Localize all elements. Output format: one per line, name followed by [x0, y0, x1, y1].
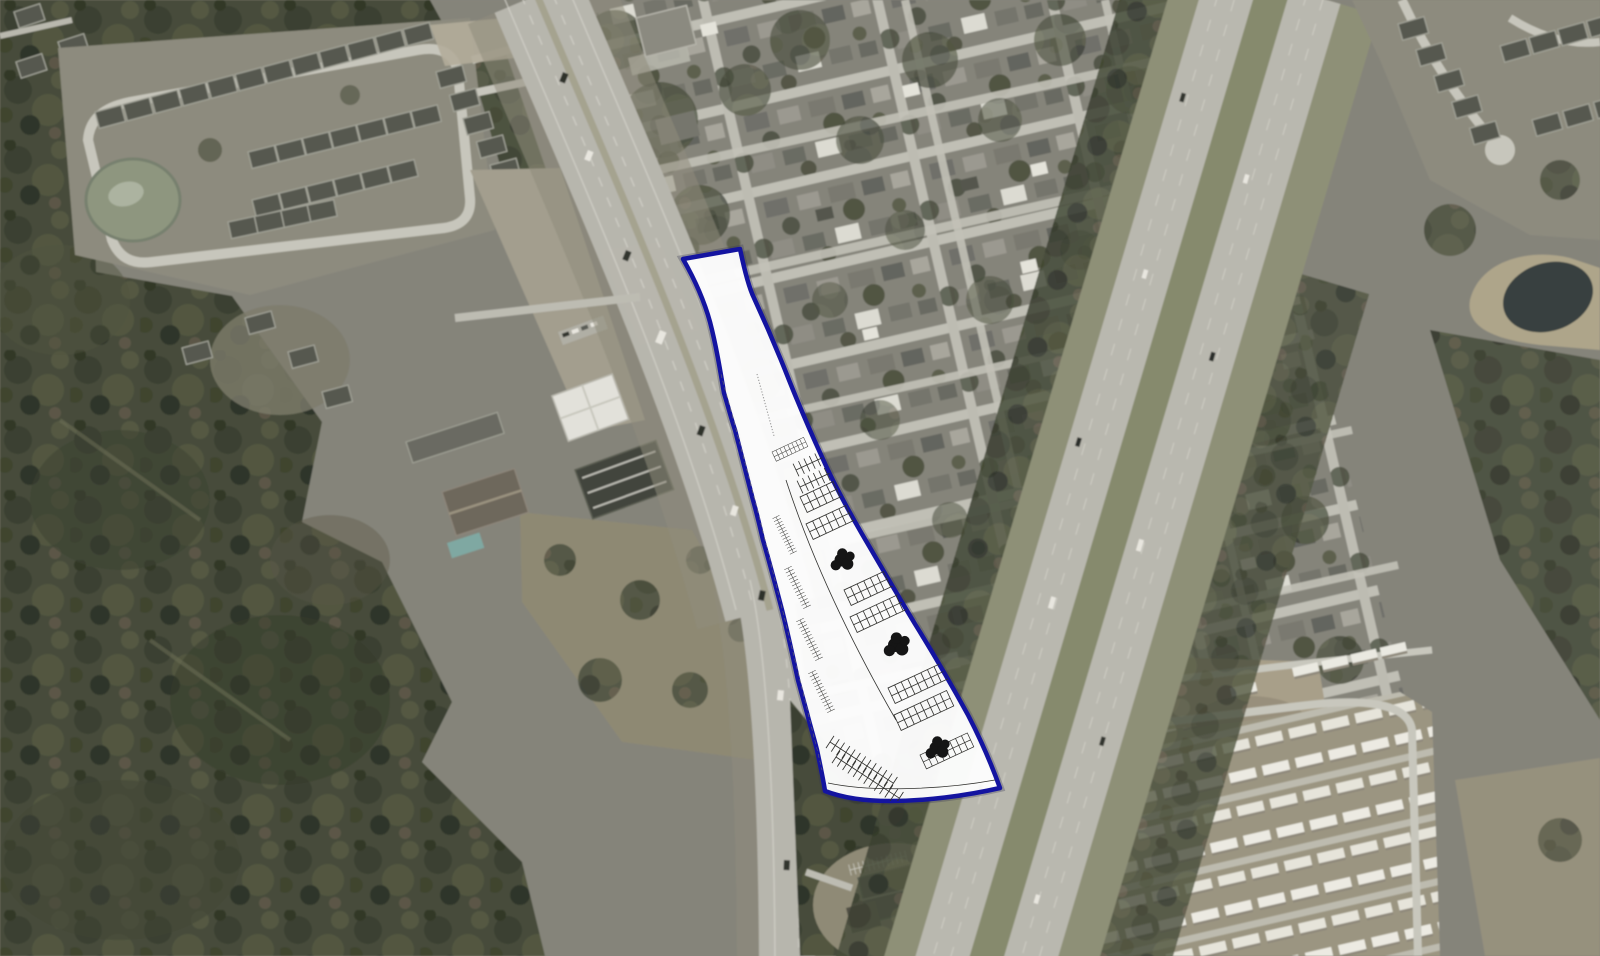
aerial-map-canvas: ): [0, 0, 1600, 956]
aerial-map: ): [0, 0, 1600, 956]
retention-pond: [86, 159, 180, 241]
